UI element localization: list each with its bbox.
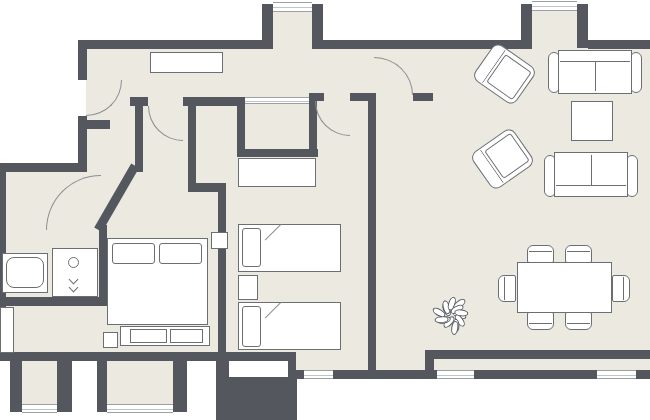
double-bed-pillow-right xyxy=(159,243,202,264)
wall-corridor-west xyxy=(135,105,143,172)
dining-chair-s2 xyxy=(565,312,592,330)
wall-south-stub-2 xyxy=(57,361,72,412)
plant-leaves xyxy=(429,291,475,339)
wall-south-stub-4 xyxy=(173,361,187,412)
dining-chair-n2 xyxy=(565,245,592,263)
wardrobe xyxy=(238,158,316,187)
wall-corridor-east xyxy=(188,105,196,190)
window-bedroom2-bay xyxy=(304,370,333,379)
window-south-niche-1 xyxy=(22,404,57,413)
wall-closet-west xyxy=(237,97,245,157)
wall-top-east xyxy=(588,40,650,49)
single-bed-1-pillow xyxy=(242,228,261,267)
wall-vestibule-bay-right xyxy=(312,4,323,49)
dining-chair-n1 xyxy=(527,245,554,263)
wall-bathroom-east xyxy=(99,225,107,306)
wall-living-bay-left xyxy=(521,4,532,49)
single-bed-2-pillow xyxy=(242,306,261,347)
dining-table xyxy=(517,262,612,313)
wall-living-bay-right xyxy=(577,4,588,48)
wall-hall-south-1 xyxy=(309,93,324,101)
wall-hall-south-3 xyxy=(413,93,433,101)
sofa-1 xyxy=(558,50,632,94)
floor-vestibule-bay xyxy=(273,11,312,49)
window-balcony-2 xyxy=(597,370,636,379)
wall-top-west xyxy=(78,40,264,49)
hall-cabinet xyxy=(150,52,223,73)
wall-bedrooms-divider xyxy=(218,183,226,361)
floor-living-bay xyxy=(532,10,577,49)
coffee-table xyxy=(571,101,613,141)
floor-south-niche-1 xyxy=(22,361,57,404)
double-bed-pillow-left xyxy=(112,243,155,264)
wall-entry-stub xyxy=(82,120,110,129)
bedroom1-nightstand-2 xyxy=(211,232,228,249)
floor-living-south xyxy=(376,352,425,370)
bedroom1-nightstand-1 xyxy=(103,332,118,348)
bedroom2-nightstand xyxy=(238,275,258,300)
window-vestibule-bay xyxy=(273,2,312,12)
bed-bench-cushion-2 xyxy=(170,329,203,343)
closet-sliding-door xyxy=(245,97,309,104)
wall-bedroom2-bay-west xyxy=(288,352,296,379)
dining-chair-e xyxy=(612,275,630,302)
wall-west-horizontal xyxy=(0,163,87,172)
sofa-2 xyxy=(554,152,628,197)
wall-south-step-2 xyxy=(229,377,297,420)
floor-plan-canvas xyxy=(0,0,650,420)
bed-bench-cushion-1 xyxy=(130,329,167,343)
wall-left-upper xyxy=(78,40,87,80)
wall-south-stub-3 xyxy=(97,361,107,412)
dining-chair-w xyxy=(498,275,516,302)
wall-closet-south xyxy=(237,149,318,157)
window-living-bay xyxy=(532,1,577,11)
wall-bedroom1-south xyxy=(0,352,296,361)
window-south-niche-2 xyxy=(107,404,173,413)
bedroom1-shelf xyxy=(0,307,14,353)
wall-south-stub-1 xyxy=(10,361,22,412)
wall-living-west xyxy=(368,93,376,379)
bathtub-inner xyxy=(6,257,44,288)
plant-icon xyxy=(429,291,475,339)
wall-vestibule-bay-left xyxy=(262,4,273,49)
wall-bathroom-south xyxy=(0,297,107,306)
wall-south-step-1 xyxy=(216,361,229,420)
dining-chair-s1 xyxy=(527,312,554,330)
window-balcony-1 xyxy=(437,370,474,379)
wall-living-south xyxy=(425,350,650,359)
floor-south-niche-2 xyxy=(107,361,173,404)
washing-machine-door xyxy=(68,257,79,268)
